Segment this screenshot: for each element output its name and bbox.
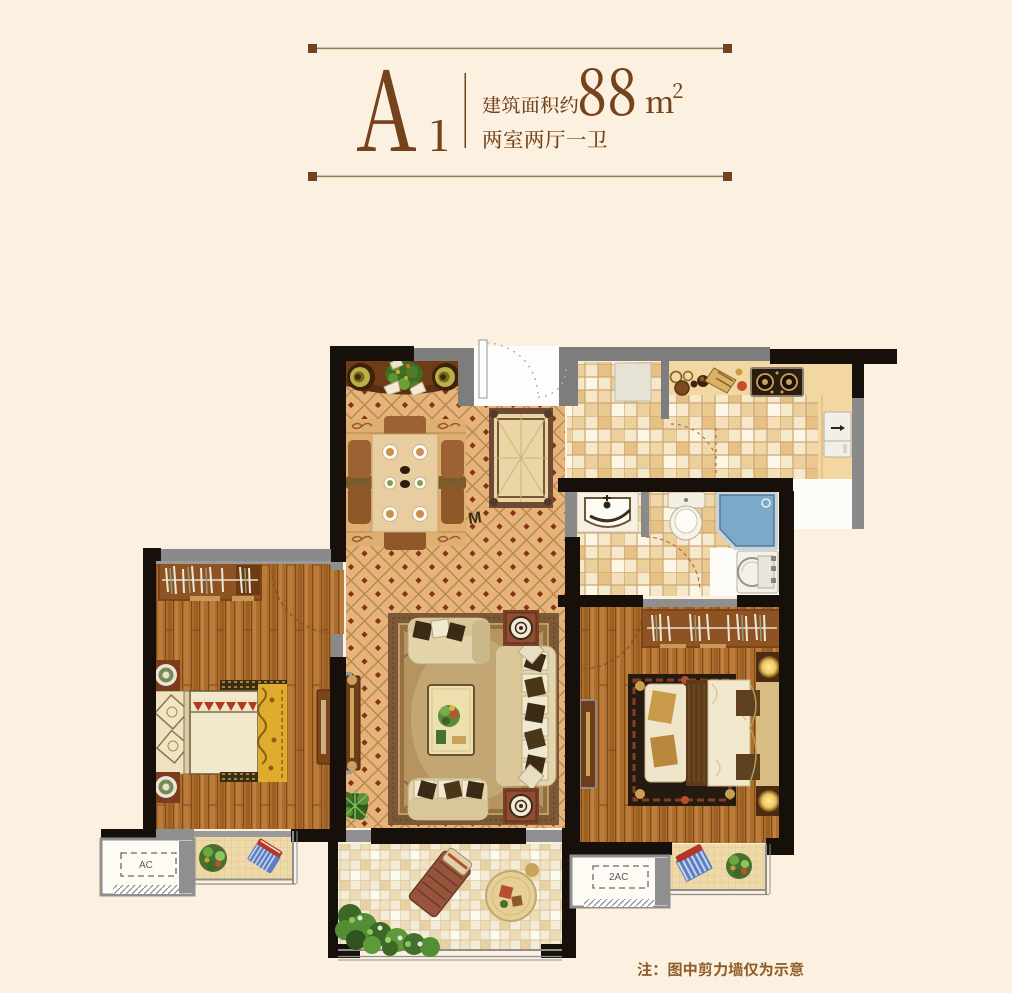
svg-text:M: M xyxy=(467,509,483,528)
svg-text:AC: AC xyxy=(139,860,153,871)
svg-text:2AC: 2AC xyxy=(609,872,628,883)
